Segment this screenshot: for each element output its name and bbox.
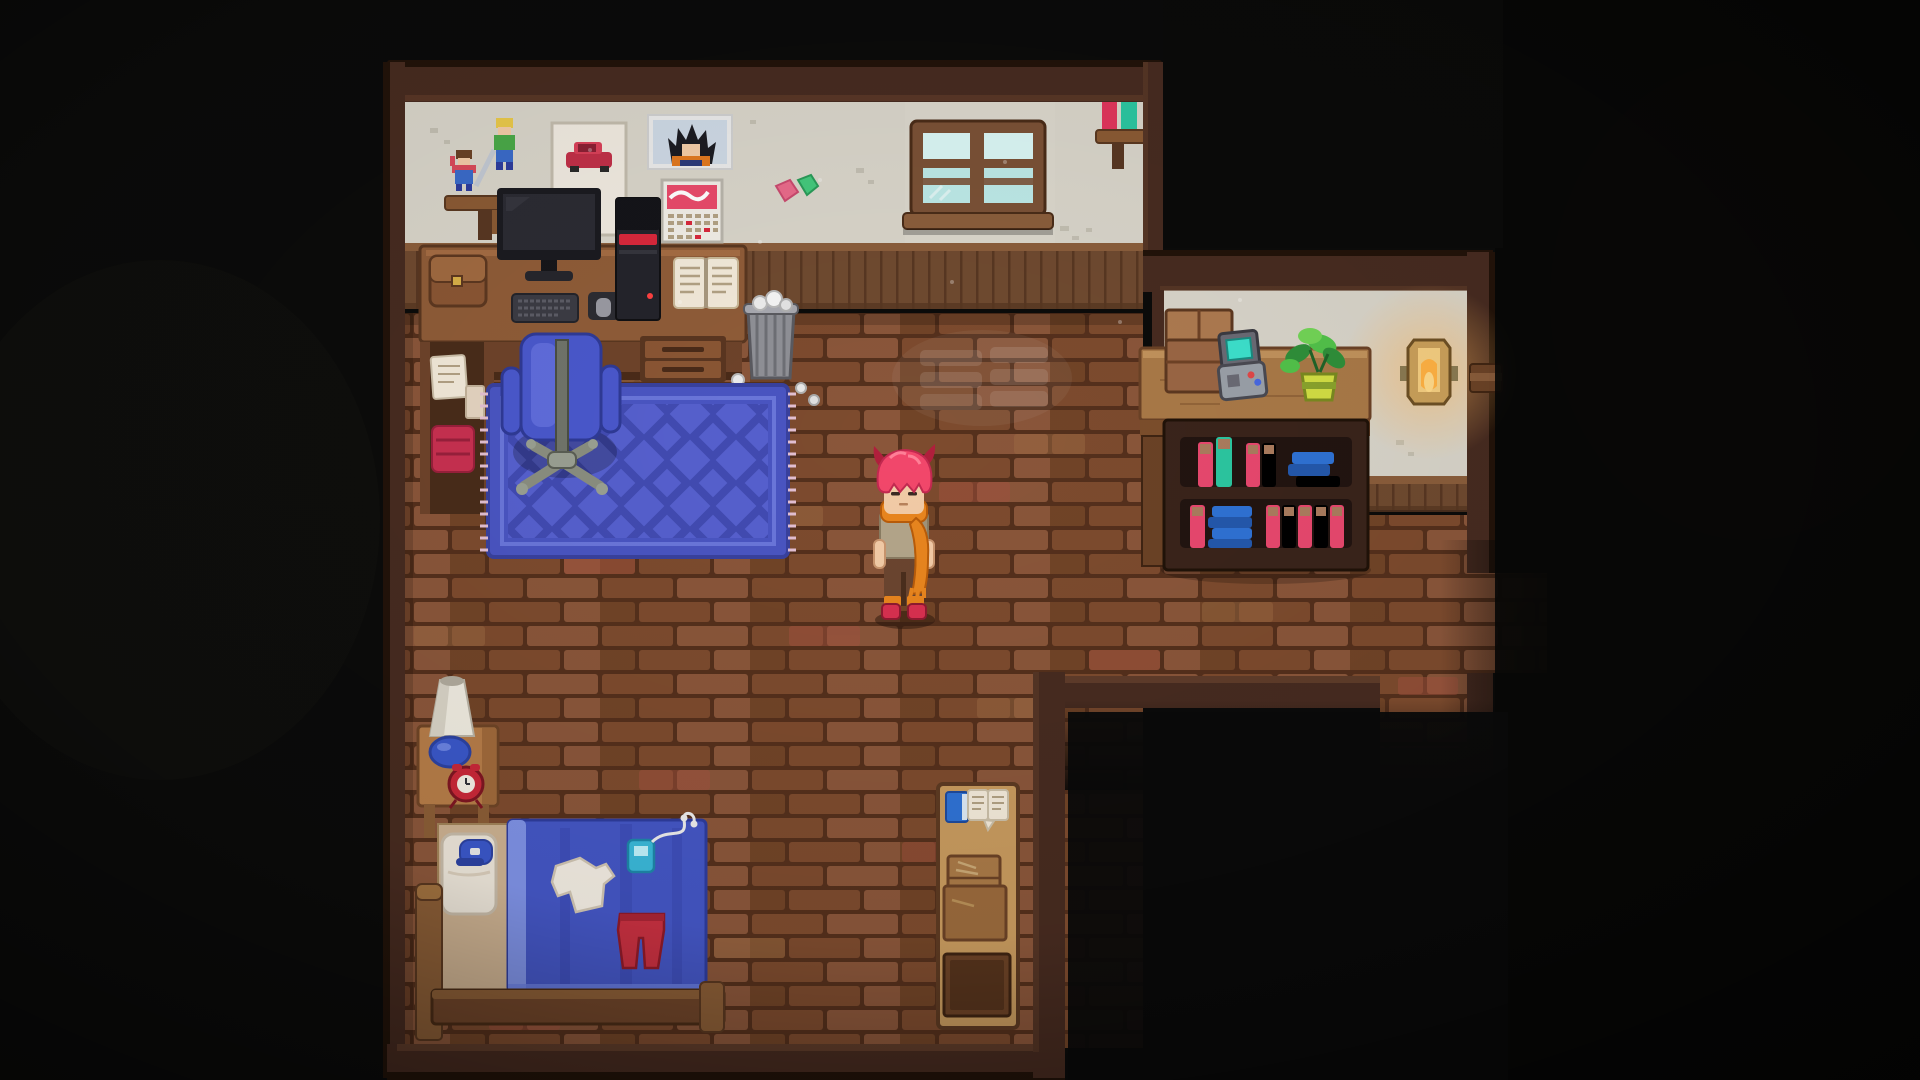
room-scene <box>0 0 1920 1080</box>
vignette <box>0 0 1920 1080</box>
game-viewport <box>0 0 1920 1080</box>
